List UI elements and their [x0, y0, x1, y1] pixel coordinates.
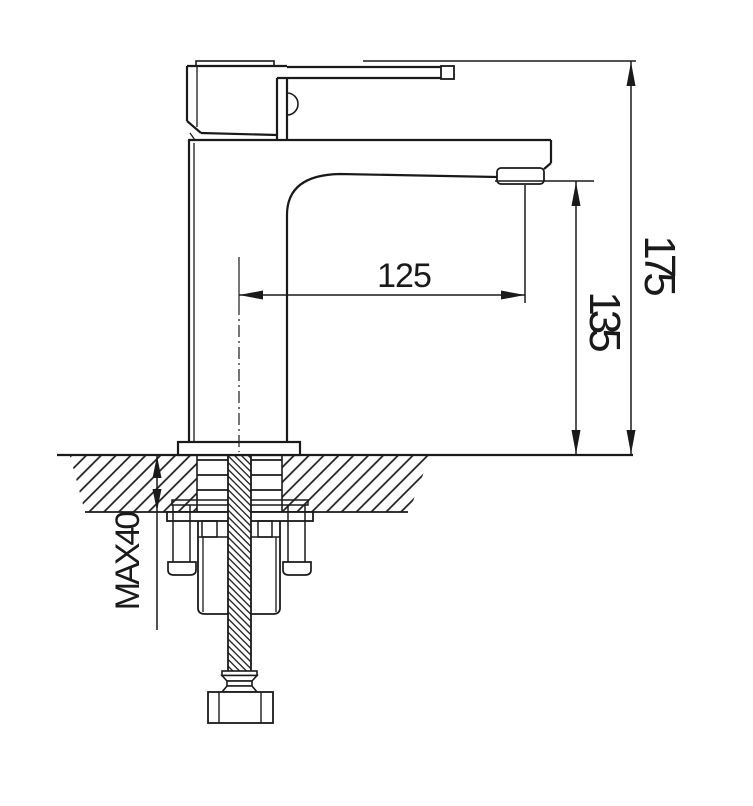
lock-tab-right	[258, 521, 272, 537]
handle-lever	[187, 61, 454, 140]
diagram-canvas: 125 135 175 MAX40	[0, 0, 753, 806]
arrow-up	[627, 62, 636, 86]
dim-label-125: 125	[377, 257, 431, 295]
counter-hatch-right	[282, 456, 430, 512]
dim-label-135: 135	[580, 291, 629, 351]
rod-end-fitting	[222, 671, 257, 692]
arrow-down	[627, 430, 636, 454]
arrow-up	[572, 182, 581, 206]
faucet-body	[178, 61, 551, 455]
threaded-rod	[228, 455, 251, 672]
arrow-right	[501, 291, 525, 300]
dim-label-175: 175	[635, 235, 684, 295]
lever-end-cap	[441, 66, 454, 79]
faucet-installation-diagram: 125 135 175 MAX40	[0, 0, 753, 806]
arrow-down	[572, 430, 581, 454]
lock-tab-left	[202, 521, 217, 537]
bolt-head-left	[168, 562, 196, 575]
hex-nut	[208, 692, 273, 723]
counter-hatch-left	[70, 456, 197, 512]
dim-label-max40: MAX40	[109, 512, 147, 611]
cartridge-bulge	[287, 93, 298, 115]
bolt-head-right	[283, 562, 311, 575]
body-and-spout	[188, 140, 551, 442]
arrow-left	[239, 291, 263, 300]
dimension-spout-height: 135	[495, 181, 629, 455]
dimension-spout-reach: 125	[239, 185, 525, 303]
